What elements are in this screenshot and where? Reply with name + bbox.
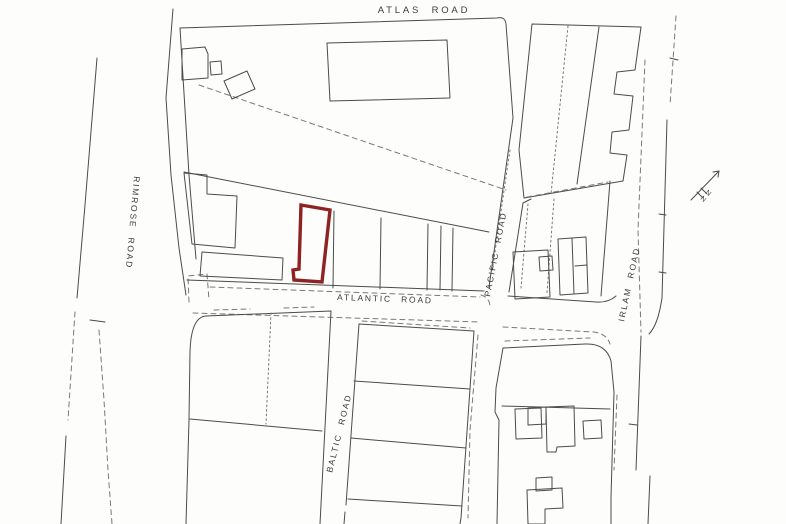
rimrose-east-edge-dashed [99,330,112,524]
pacific-east-edge [509,199,531,292]
building-l [527,488,563,524]
small-building-a [182,47,208,80]
long-building [200,252,283,280]
south-east-block-outline [495,344,614,524]
irlam-lower-east [648,476,650,524]
road-label-rimrose: RIMROSE ROAD [124,176,142,270]
irlam-corner-curve [649,298,662,334]
north-arrow-icon: N N [691,171,719,204]
irlam-lower-tick [629,424,637,425]
south-west-block-top-dashes-2 [284,307,314,308]
rimrose-west-edge-dashed [68,312,75,420]
atlas-block-outline [180,18,513,287]
building-block-e [539,256,553,271]
south-west-block [186,307,331,524]
rimrose-pavement-line [166,9,186,295]
south-west-block-top-dashes-1 [214,309,250,310]
north-east-block-inner-dotted [551,26,568,194]
rimrose-survey-tick [90,320,105,322]
south-east-block [495,338,617,524]
south-middle-block-outline [346,324,474,518]
south-west-block-divider [190,419,322,431]
plot-divider-3 [427,224,428,290]
irlam-east-edge [662,120,667,298]
building-i [546,406,575,452]
large-building [327,40,450,101]
north-east-block-outline [519,24,641,198]
connector-dotted-1 [521,204,528,288]
south-east-block-top-dashed [505,338,590,341]
site-plan-drawing: N N ATLAS ROAD RIMROSE ROAD ATLANTIC ROA… [0,0,786,524]
south-middle-block [344,321,478,524]
highlighted-plot [293,205,330,282]
far-right-dashed-top [670,16,676,105]
building-block-f-divider [572,238,574,294]
south-middle-right-continuation [460,518,461,524]
rimrose-notch-dashed [188,274,209,302]
road-label-pacific: PACIFIC ROAD [482,211,508,298]
north-label-1: N [699,195,707,204]
far-right-tick [670,58,678,60]
rimrose-west-edge [77,58,97,298]
north-east-block-east-boundary [601,181,610,296]
road-label-atlantic: ATLANTIC ROAD [337,292,433,305]
building-block-f-step [575,265,587,266]
plot-divider-2 [380,218,381,289]
irlam-tick-1 [659,214,666,215]
building-block-d [513,250,550,299]
south-east-block-right-dashed [614,395,617,470]
plot-row [184,173,484,297]
south-west-block-outline [186,311,331,524]
south-middle-left-continuation [344,512,345,524]
connector-dotted-2 [547,199,554,293]
road-label-atlas: ATLAS ROAD [378,5,470,16]
irlam-lower-west [636,336,641,470]
north-east-block-inner-building [577,27,599,184]
rimrose-west-edge-lower [61,436,66,524]
plot-divider-4 [440,226,441,290]
diagonal-boundary-solid [184,172,489,232]
irlam-west-edge-dashed [638,60,645,332]
irlam-tick-2 [659,272,666,273]
building-h [528,407,546,425]
pacific-lower-west-dashed [468,335,478,518]
south-middle-block-top-dashed [362,321,470,328]
north-east-block-bottom-dashed [527,182,608,197]
road-label-irlam: IRLAM ROAD [616,246,642,322]
building-j [583,420,602,439]
plot-divider-5 [452,228,453,291]
atlantic-south-edge-right-dashed [503,327,610,344]
north-east-block [513,24,641,299]
site-plan: N N ATLAS ROAD RIMROSE ROAD ATLANTIC ROA… [0,0,786,524]
south-middle-divider-3 [348,499,462,506]
south-middle-divider-2 [351,438,466,448]
south-west-block-divider-dotted [266,313,271,424]
south-middle-divider-1 [354,381,470,389]
plot-divider-1 [333,211,334,288]
small-building-b [210,61,222,75]
atlas-block [180,18,513,287]
atlantic-north-edge-right [508,296,616,302]
plot-row-south-edge [187,280,484,291]
